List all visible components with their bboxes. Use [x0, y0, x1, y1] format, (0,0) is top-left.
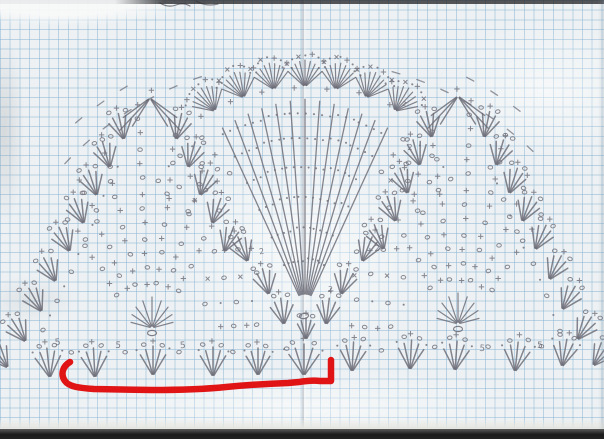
right-pineapple-motif: [362, 86, 604, 365]
scanned-page: z222255555: [0, 0, 604, 439]
svg-text:z: z: [402, 99, 408, 109]
svg-text:5: 5: [115, 341, 121, 351]
scan-edge-bottom-light: [0, 420, 604, 429]
svg-text:2: 2: [259, 247, 265, 257]
center-fan: z2: [184, 52, 426, 320]
left-pineapple-motif: [0, 88, 245, 368]
svg-text:5: 5: [54, 338, 61, 349]
svg-text:2: 2: [327, 285, 333, 294]
svg-text:5: 5: [180, 341, 186, 351]
svg-text:5: 5: [479, 344, 486, 355]
svg-text:5: 5: [537, 341, 543, 351]
scan-edge-bottom-dark: [0, 429, 604, 439]
crochet-chart-svg: z222255555: [0, 0, 604, 439]
scan-edge-top: [0, 0, 604, 4]
scan-edge-right: [598, 0, 604, 429]
